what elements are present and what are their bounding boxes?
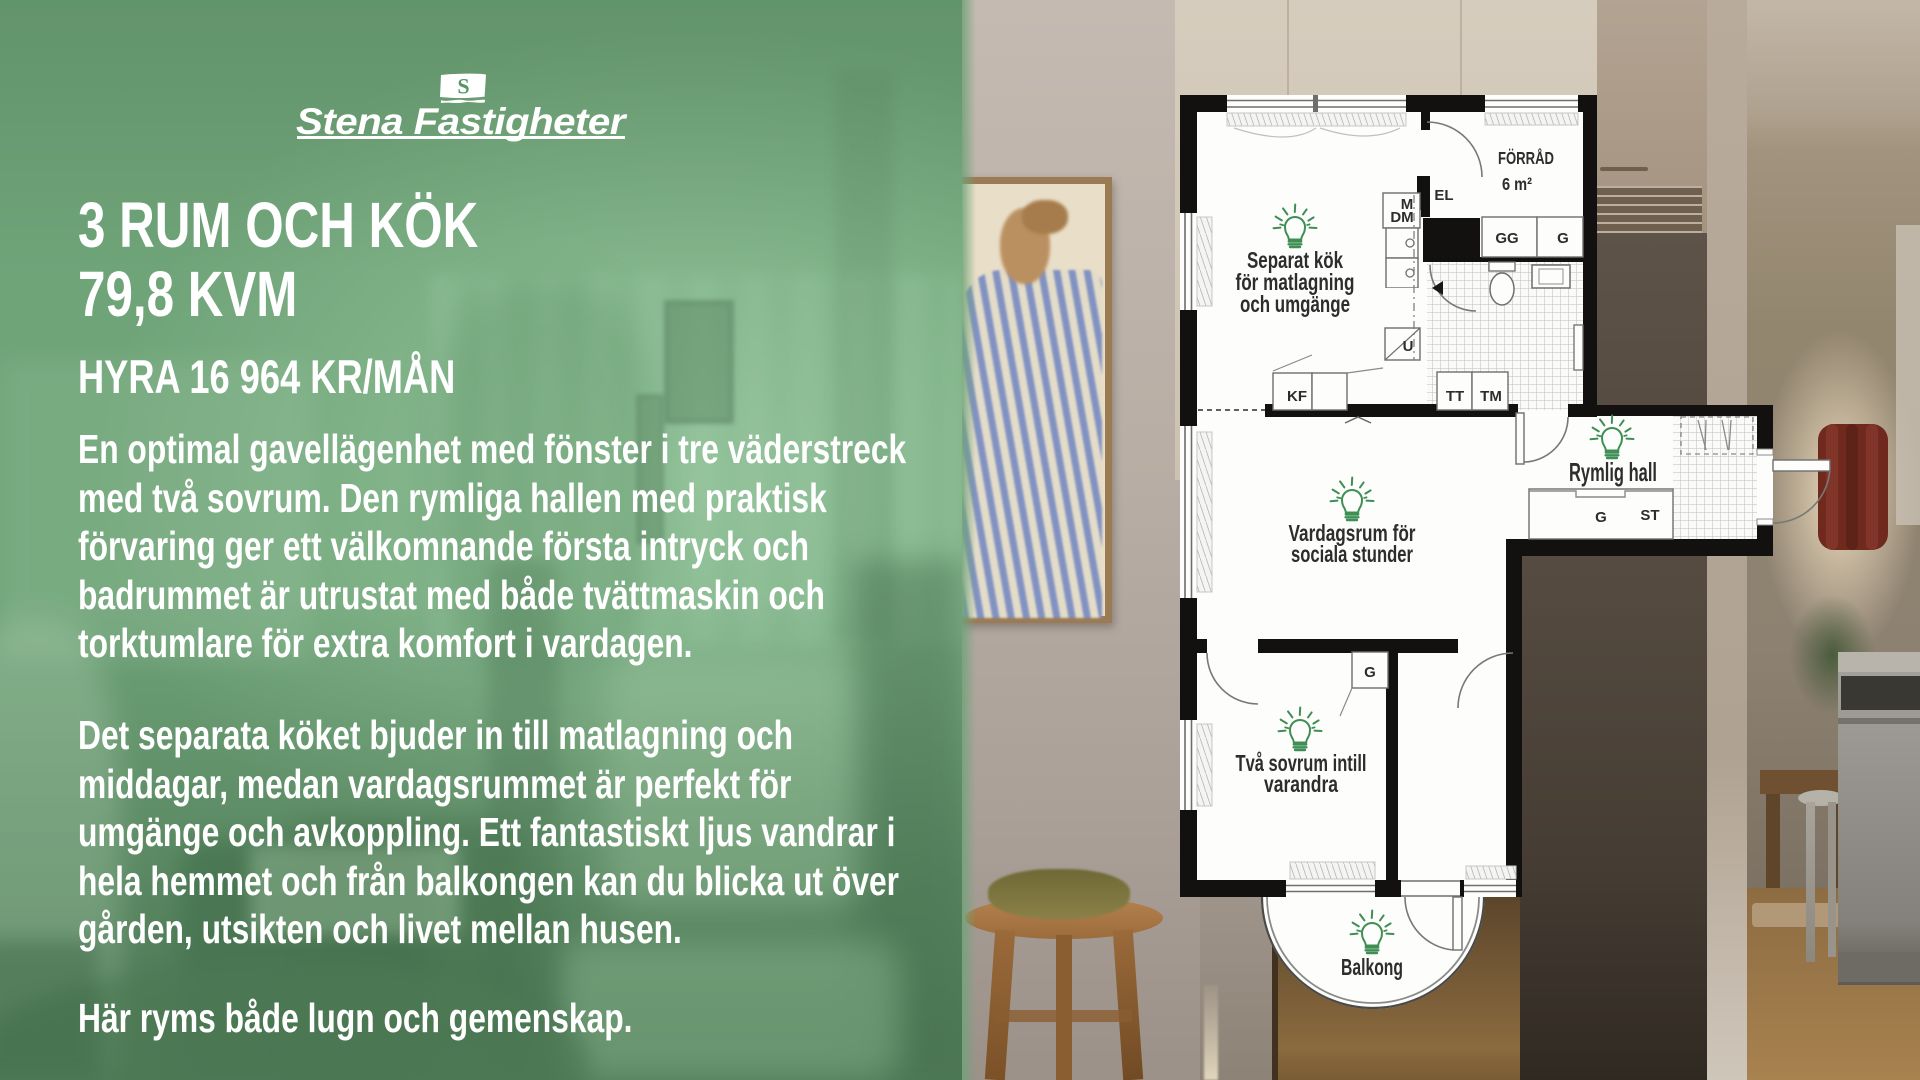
svg-text:G: G xyxy=(1595,509,1607,526)
svg-text:KF: KF xyxy=(1287,388,1307,405)
svg-text:och umgänge: och umgänge xyxy=(1240,291,1350,317)
svg-text:TM: TM xyxy=(1480,388,1502,405)
svg-text:G: G xyxy=(1364,664,1376,681)
svg-text:6 m²: 6 m² xyxy=(1502,174,1532,194)
svg-text:U: U xyxy=(1403,338,1414,355)
svg-text:EL: EL xyxy=(1434,187,1453,204)
svg-text:Balkong: Balkong xyxy=(1341,954,1403,980)
svg-text:varandra: varandra xyxy=(1264,771,1338,797)
svg-text:ST: ST xyxy=(1640,507,1659,524)
svg-text:sociala stunder: sociala stunder xyxy=(1291,541,1413,567)
svg-text:Rymlig hall: Rymlig hall xyxy=(1569,457,1657,487)
svg-text:M: M xyxy=(1401,196,1414,213)
svg-text:FÖRRÅD: FÖRRÅD xyxy=(1498,148,1554,168)
svg-text:TT: TT xyxy=(1446,388,1464,405)
svg-text:G: G xyxy=(1557,230,1569,247)
svg-text:S: S xyxy=(457,74,469,99)
svg-text:GG: GG xyxy=(1495,230,1518,247)
